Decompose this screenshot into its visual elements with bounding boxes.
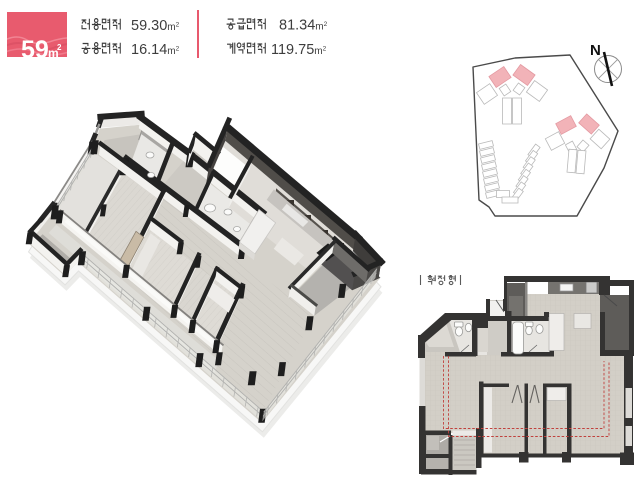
svg-text:59.30m2: 59.30m2 (131, 18, 180, 34)
svg-text:81.34m2: 81.34m2 (279, 18, 328, 34)
svg-text:119.75m2: 119.75m2 (271, 42, 327, 58)
svg-text:16.14m2: 16.14m2 (131, 42, 180, 58)
svg-text:N: N (590, 42, 601, 59)
